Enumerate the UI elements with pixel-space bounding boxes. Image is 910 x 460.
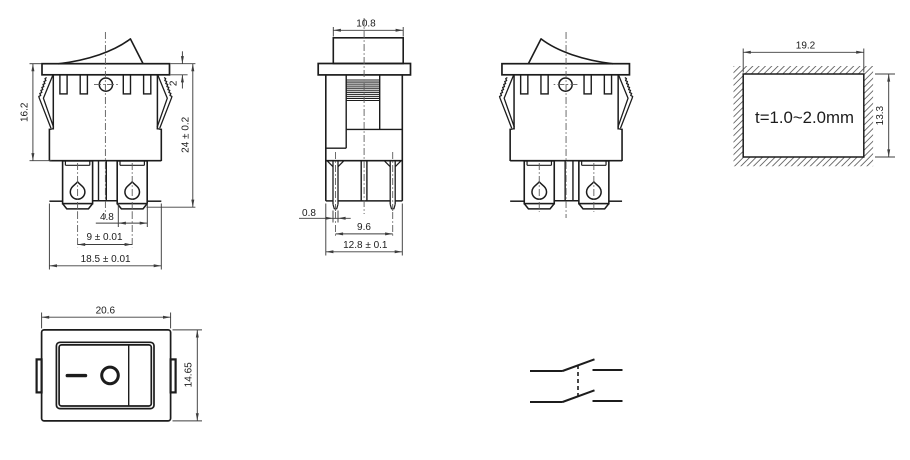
svg-text:14.65: 14.65	[184, 362, 195, 387]
svg-text:20.6: 20.6	[96, 306, 116, 317]
svg-text:18.5 ± 0.01: 18.5 ± 0.01	[81, 254, 131, 265]
svg-text:9 ± 0.01: 9 ± 0.01	[86, 232, 123, 243]
svg-text:16.2: 16.2	[20, 102, 31, 122]
svg-text:24 ± 0.2: 24 ± 0.2	[181, 116, 192, 153]
svg-text:0.8: 0.8	[302, 208, 316, 219]
svg-text:10.8: 10.8	[356, 19, 376, 30]
svg-text:12.8 ± 0.1: 12.8 ± 0.1	[343, 240, 388, 251]
svg-text:19.2: 19.2	[796, 41, 816, 52]
svg-text:13.3: 13.3	[875, 105, 886, 125]
svg-text:t=1.0~2.0mm: t=1.0~2.0mm	[755, 108, 854, 127]
svg-text:4.8: 4.8	[100, 212, 114, 223]
svg-text:2: 2	[169, 80, 180, 86]
svg-text:9.6: 9.6	[357, 222, 371, 233]
